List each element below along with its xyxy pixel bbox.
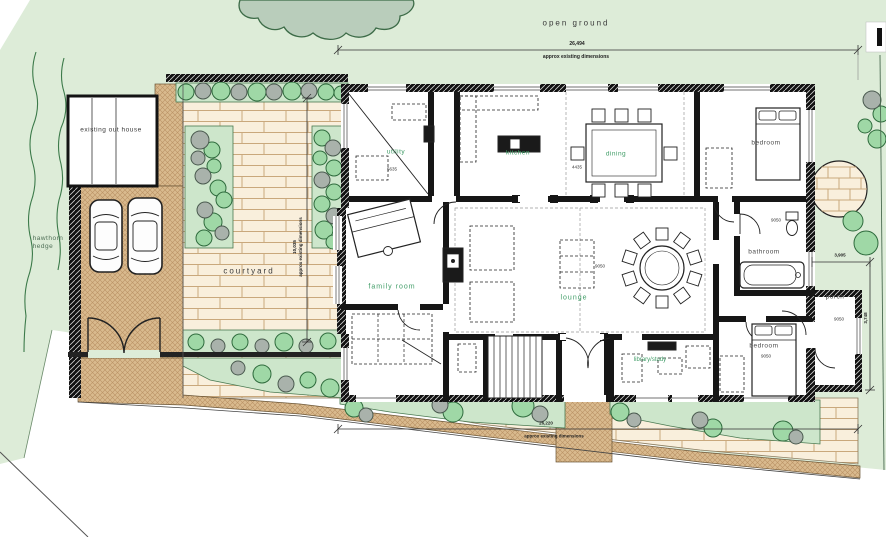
lounge-label: lounge bbox=[560, 295, 587, 302]
plan-graphics bbox=[0, 0, 886, 537]
site-plan-drawing: open ground 26,494 approx existing dimen… bbox=[0, 0, 886, 537]
stairs-icon bbox=[488, 336, 542, 398]
porch-label: porch bbox=[826, 294, 845, 301]
lounge-number: 9050 bbox=[595, 264, 605, 269]
dim-courtyard: 10,035 approx existing dimensions bbox=[292, 217, 304, 277]
toilet-icon bbox=[786, 212, 798, 236]
dim-porch-width: 3,905 bbox=[834, 253, 845, 258]
library-study-label: library/study bbox=[634, 357, 666, 363]
dim-bottom-value: 26,220 bbox=[539, 421, 553, 426]
clipped-text-box bbox=[866, 22, 886, 52]
open-ground-label: open ground bbox=[543, 19, 610, 28]
dim-bottom-caption: approx existing dimensions bbox=[524, 434, 584, 439]
bathtub-icon bbox=[740, 262, 804, 288]
dim-top-caption: approx existing dimensions bbox=[543, 54, 609, 60]
bedroom-bottom-label: bedroom bbox=[749, 343, 778, 350]
car-icon bbox=[90, 200, 122, 272]
utility-number: 5635 bbox=[387, 167, 397, 172]
kitchen-label: kitchen bbox=[506, 150, 530, 157]
family-room-label: family room bbox=[368, 284, 415, 291]
out-house bbox=[68, 96, 157, 186]
bathroom-label: bathroom bbox=[748, 249, 779, 256]
bathroom-number: 9050 bbox=[771, 218, 781, 223]
patio-circle bbox=[811, 161, 868, 217]
out-house-label: existing out house bbox=[80, 127, 141, 134]
dim-porch-depth: 3,748 bbox=[863, 312, 869, 323]
house bbox=[333, 84, 862, 402]
courtyard-label: courtyard bbox=[223, 267, 274, 276]
kitchen-dining-number: 4435 bbox=[572, 165, 582, 170]
bed-icon bbox=[752, 324, 796, 396]
dim-top-value: 26,494 bbox=[569, 41, 584, 47]
dining-label: dining bbox=[606, 151, 626, 158]
porch-number: 9050 bbox=[834, 317, 844, 322]
bedroom-bottom-number: 9050 bbox=[761, 354, 771, 359]
car-icon bbox=[128, 198, 162, 274]
bedroom-top-label: bedroom bbox=[751, 140, 780, 147]
hawthorn-hedge-label: hawthorn hedge bbox=[33, 235, 64, 251]
utility-label: utility bbox=[387, 149, 405, 156]
